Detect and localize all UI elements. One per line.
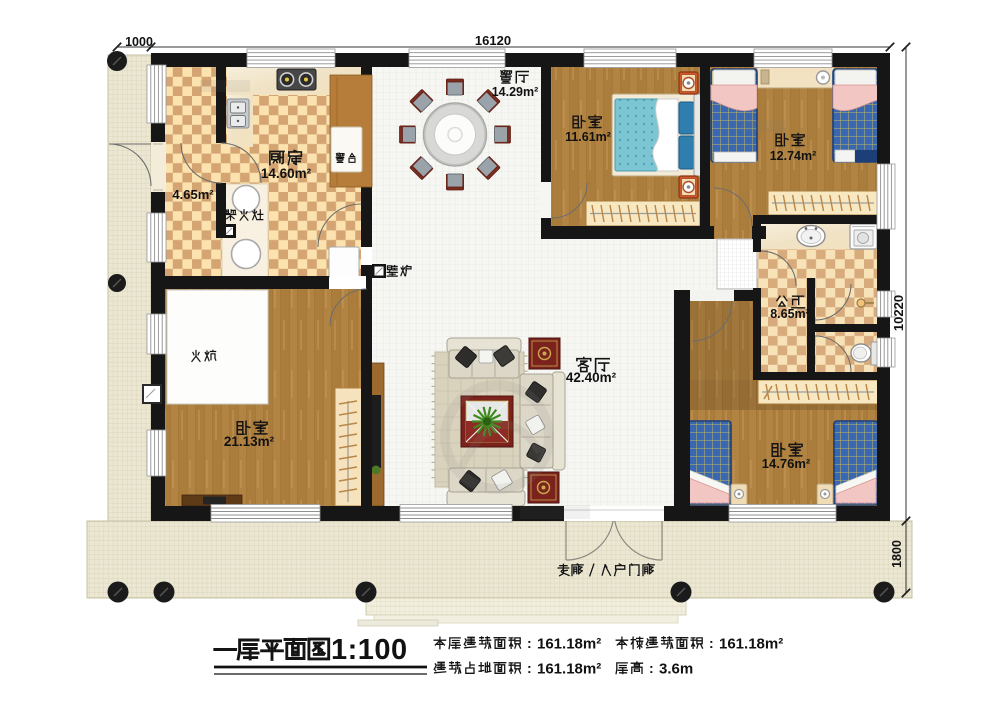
svg-text:3.6m: 3.6m <box>659 661 693 678</box>
svg-text:4.65m²: 4.65m² <box>172 187 214 202</box>
svg-text:42.40m²: 42.40m² <box>566 370 617 385</box>
svg-text::: : <box>527 635 532 651</box>
svg-text::: : <box>649 660 654 676</box>
svg-text:14.76m²: 14.76m² <box>762 456 811 471</box>
svg-text:21.13m²: 21.13m² <box>224 434 275 449</box>
svg-text::: : <box>709 635 714 651</box>
svg-text:161.18m²: 161.18m² <box>537 636 601 653</box>
svg-text::: : <box>527 660 532 676</box>
svg-text:16120: 16120 <box>475 33 511 48</box>
svg-text:14.29m²: 14.29m² <box>492 85 539 99</box>
svg-text:14.60m²: 14.60m² <box>261 166 312 181</box>
svg-text:11.61m²: 11.61m² <box>565 130 611 144</box>
svg-text:1:100: 1:100 <box>331 634 408 666</box>
svg-text:1800: 1800 <box>890 540 904 568</box>
svg-text:161.18m²: 161.18m² <box>719 636 783 653</box>
svg-text:12.74m²: 12.74m² <box>770 149 817 163</box>
svg-text:1000: 1000 <box>125 35 153 49</box>
svg-text:8.65m²: 8.65m² <box>770 307 810 321</box>
svg-text:161.18m²: 161.18m² <box>537 661 601 678</box>
svg-text:10220: 10220 <box>891 295 906 331</box>
